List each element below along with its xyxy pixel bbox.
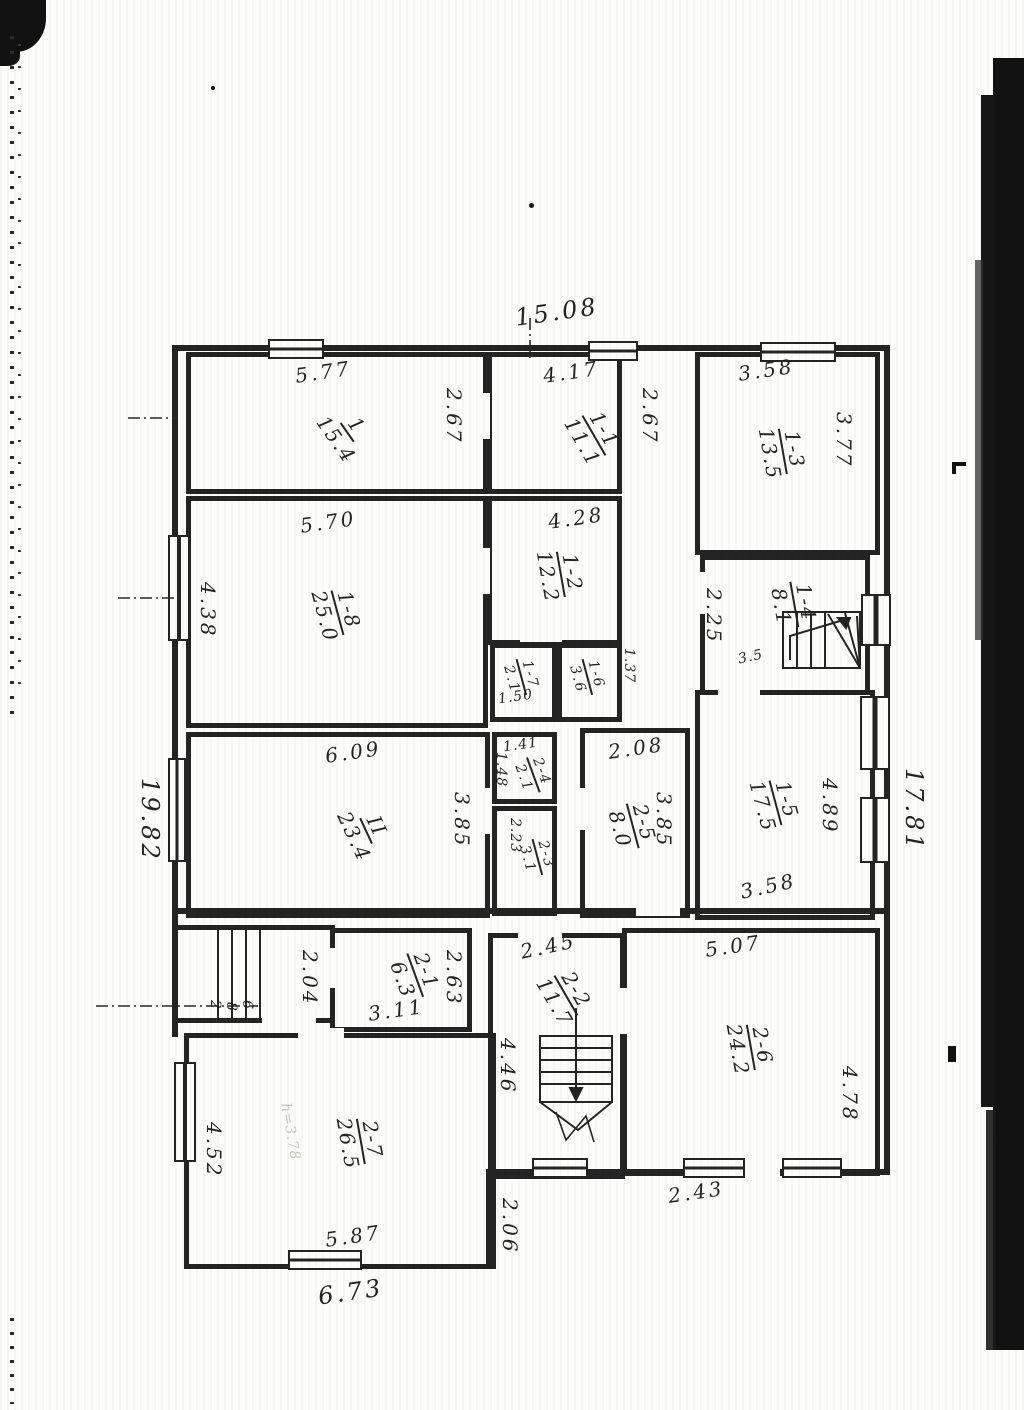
floorplan-sheet: 15.08 19.82 17.81 2.06 5.77 2.67 1 15.4 … (0, 0, 1024, 1410)
window (860, 696, 890, 770)
scan-artifact-corner (0, 0, 46, 52)
window (782, 1158, 842, 1178)
window (168, 535, 190, 641)
room-label-1-3: 1-3 13.5 (755, 422, 809, 482)
door-gap (636, 902, 680, 916)
scan-artifact-band-right (986, 1110, 996, 1350)
scan-artifact-band-right (975, 260, 983, 640)
dim-room2-6-bottom: 2.43 (667, 1178, 726, 1206)
dim-overall-left: 19.82 (138, 778, 162, 862)
dim-room2-7-outer: 6.73 (317, 1276, 385, 1309)
dim-room1-4-depth: 2.25 (704, 588, 724, 645)
door-gap (617, 988, 629, 1034)
door-gap (742, 1162, 780, 1176)
room-label-2-7: 2-7 26.5 (333, 1112, 387, 1172)
room-label-1-2: 1-2 12.2 (533, 545, 587, 605)
window (860, 797, 890, 863)
outer-wall-left (172, 345, 178, 1037)
door-gap (575, 788, 587, 830)
door-gap (474, 393, 490, 439)
door-gap (325, 948, 337, 988)
room-label-1-4: 1-4 8.1 (767, 578, 820, 632)
dim-room1-5-depth: 4.89 (820, 778, 840, 835)
dim-room2-2-depth: 4.46 (498, 1038, 518, 1095)
dim-room2-6-depth: 4.78 (840, 1066, 860, 1123)
dim-bottom-mid: 2.06 (500, 1198, 520, 1255)
porch-step-label: 2 (208, 1000, 222, 1010)
dim-overall-right: 17.81 (902, 768, 926, 852)
scan-artifact-dots-left (10, 36, 14, 726)
porch-step-label: 8 (224, 1002, 238, 1012)
window (168, 758, 186, 862)
door-gap (474, 548, 490, 594)
dim-room1-depth: 2.67 (444, 388, 464, 445)
dim-room2-7-depth: 4.52 (204, 1122, 224, 1179)
scan-artifact-dots-left (10, 1318, 14, 1404)
scan-artifact-mark (948, 1046, 956, 1062)
window (174, 1062, 196, 1162)
door-gap (474, 788, 490, 834)
dim-roomII-depth: 3.85 (452, 792, 472, 849)
window (861, 594, 891, 646)
dim-room2-4-depth: 1.48 (494, 752, 508, 787)
room-label-2-6: 2-6 24.2 (723, 1018, 777, 1078)
dim-room2-1-entry: 2.04 (300, 950, 320, 1007)
window (268, 339, 324, 359)
scan-artifact-mark (952, 462, 956, 474)
porch-wall-top (172, 925, 335, 930)
window (532, 1158, 588, 1178)
scan-artifact-band-right (981, 95, 995, 1107)
porch-step-label: 6 (240, 1000, 254, 1010)
dim-room1-6: 1.37 (622, 648, 636, 683)
dim-overall-top: 15.08 (514, 294, 600, 329)
scan-artifact-dots-left (18, 44, 21, 684)
door-gap (718, 684, 760, 696)
scan-artifact-band-right (993, 58, 1024, 1350)
dim-room1-8-depth: 4.38 (198, 582, 218, 639)
dim-room1-1-depth: 2.67 (640, 388, 660, 445)
door-gap (298, 1028, 344, 1040)
door-gap (262, 1014, 316, 1026)
window (288, 1250, 362, 1270)
window (683, 1158, 745, 1178)
scan-artifact-dot (529, 203, 534, 208)
dim-room2-1-depth: 2.63 (444, 950, 464, 1007)
dim-room1-3-depth: 3.77 (834, 412, 854, 469)
door-gap (520, 628, 562, 642)
scan-artifact-dot (211, 86, 215, 90)
